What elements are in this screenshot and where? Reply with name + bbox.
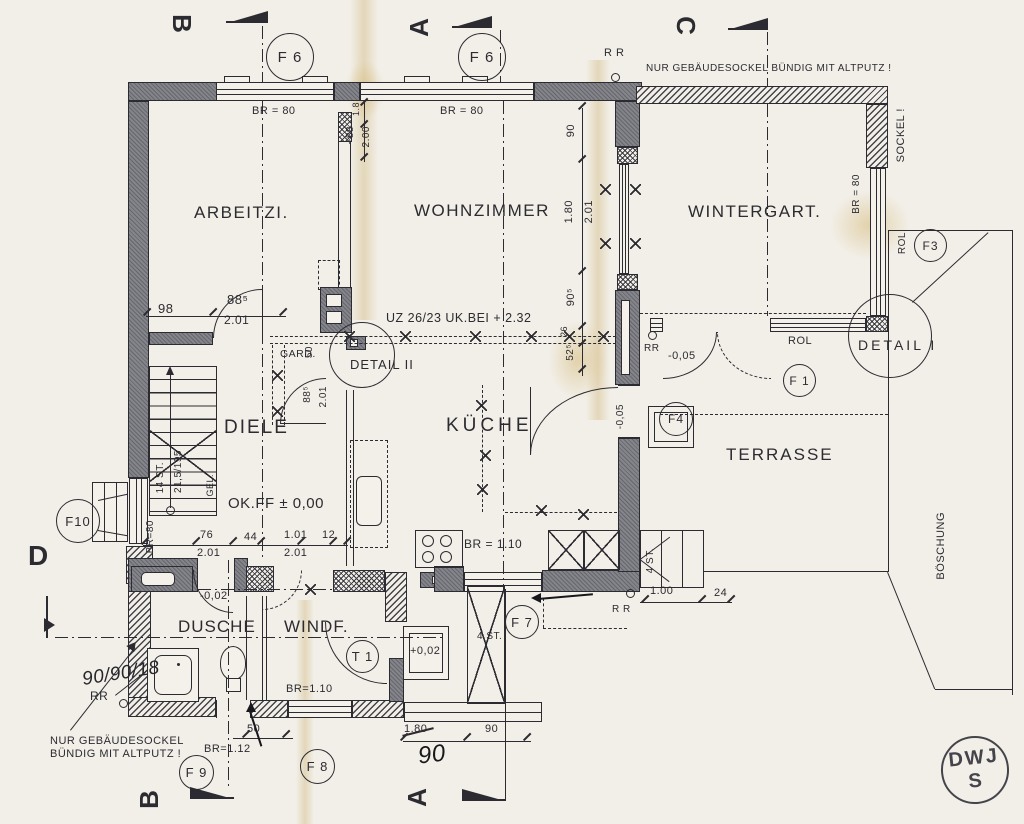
dim-br80-wintergarten: BR = 80 bbox=[852, 174, 862, 214]
marker-f4: F4 bbox=[659, 402, 693, 436]
door-arc-terrace bbox=[530, 387, 618, 455]
beam-mark bbox=[526, 331, 537, 342]
dim-tick bbox=[209, 308, 217, 316]
stoop-dashed bbox=[543, 598, 544, 628]
dim-br112: BR=1.12 bbox=[204, 744, 251, 756]
stamp-line2: S bbox=[967, 769, 985, 793]
section-flag bbox=[458, 16, 492, 26]
rr-pipe bbox=[626, 589, 635, 598]
detail1-label: DETAIL I bbox=[858, 338, 937, 353]
beam-mark bbox=[578, 509, 589, 520]
section-flag bbox=[462, 799, 506, 801]
dim-98: 98 bbox=[158, 302, 173, 316]
beam-mark bbox=[470, 331, 481, 342]
dashed-recess bbox=[318, 260, 340, 290]
note-steps-terrasse: 4 ST. bbox=[646, 548, 656, 573]
cooktop bbox=[415, 530, 463, 568]
section-flag bbox=[190, 797, 234, 799]
window bbox=[650, 318, 663, 332]
wall-niche bbox=[621, 300, 630, 375]
room-label-dusche: DUSCHE bbox=[178, 618, 256, 636]
beam-mark bbox=[600, 238, 611, 249]
beam-mark bbox=[630, 238, 641, 249]
dim-201d: 2.01 bbox=[284, 548, 307, 560]
steps-diagonal bbox=[467, 586, 505, 704]
note-rol-terrasse: ROL bbox=[788, 336, 812, 348]
section-flag bbox=[226, 21, 268, 23]
section-letter-d: D bbox=[28, 540, 48, 572]
marker-f8: F 8 bbox=[300, 749, 335, 784]
door-jamb bbox=[216, 700, 217, 718]
wall bbox=[389, 658, 404, 702]
beam-mark bbox=[480, 450, 491, 461]
step-line bbox=[682, 530, 683, 588]
dim-tick bbox=[463, 733, 471, 741]
room-label-wintergarten: WINTERGART. bbox=[688, 203, 821, 221]
dim-101: 1.01 bbox=[284, 530, 307, 542]
note-sockel-top: NUR GEBÄUDESOCKEL BÜNDIG MIT ALTPUTZ ! bbox=[646, 64, 892, 75]
marker-f9: F 9 bbox=[179, 755, 214, 790]
note-stairs-count: 14 ST. bbox=[156, 462, 166, 493]
dim-26: 26 bbox=[560, 326, 569, 337]
marker-label: F 8 bbox=[307, 759, 329, 774]
wc bbox=[220, 646, 246, 680]
marker-label: T 1 bbox=[352, 649, 374, 664]
site-line bbox=[935, 689, 1012, 690]
wall bbox=[128, 82, 218, 101]
window bbox=[360, 82, 534, 101]
wall-sockel bbox=[636, 86, 888, 104]
dim-line bbox=[640, 602, 732, 603]
steps-landing-line bbox=[404, 712, 542, 713]
terrace-dashed bbox=[660, 414, 888, 415]
detail2-label: DETAIL II bbox=[350, 358, 414, 372]
dim-tick bbox=[282, 730, 290, 738]
marker-label: F4 bbox=[668, 412, 684, 426]
partition bbox=[246, 596, 247, 700]
rr-pipe bbox=[611, 73, 620, 82]
wall bbox=[615, 101, 640, 147]
wall-pier bbox=[617, 147, 638, 164]
dim-minus002: -0,02 bbox=[200, 591, 228, 603]
dwj-stamp: DWJ S bbox=[938, 733, 1013, 808]
label-rr-bottomleft: RR bbox=[90, 690, 108, 703]
note-okff: OK.FF ± 0,00 bbox=[228, 496, 324, 512]
marker-label: F 7 bbox=[511, 615, 533, 630]
walkline-arrow bbox=[166, 366, 174, 375]
beam-mark bbox=[477, 484, 488, 495]
window bbox=[216, 82, 334, 101]
note-gelaender: GEL. bbox=[206, 474, 215, 497]
terrace-edge bbox=[703, 571, 889, 572]
partition bbox=[266, 596, 267, 700]
burner bbox=[422, 551, 434, 563]
dim-100: 1.00 bbox=[650, 586, 673, 598]
section-letter-a-bottom: A bbox=[402, 788, 433, 807]
rr-pipe bbox=[119, 699, 128, 708]
storage-box bbox=[548, 530, 584, 570]
dim-br80-diele: BR=80 bbox=[146, 520, 156, 553]
dim-50v: 50 bbox=[305, 346, 315, 358]
section-letter-b-bottom: B bbox=[134, 790, 165, 809]
stair-walkline bbox=[170, 372, 171, 508]
wall bbox=[618, 438, 640, 572]
marker-f6-mid: F 6 bbox=[458, 33, 506, 81]
window-sill bbox=[224, 76, 250, 83]
section-letter-b-top: B bbox=[166, 14, 197, 33]
terrace-edge bbox=[888, 230, 889, 572]
section-line-c bbox=[767, 32, 768, 86]
marker-label: F 6 bbox=[470, 49, 495, 66]
dim-76: 76 bbox=[200, 530, 213, 542]
label-rr-wintergarten: RR bbox=[644, 344, 659, 355]
section-flag bbox=[734, 18, 768, 28]
note-beam: UZ 26/23 UK.BEI + 2.32 bbox=[386, 312, 531, 325]
section-flag bbox=[44, 618, 55, 632]
dim-24: 24 bbox=[714, 588, 727, 600]
door-arc-windfang-dashed bbox=[262, 570, 302, 610]
stamp-line1: DWJ bbox=[947, 744, 1000, 772]
note-sockel-left-2: BÜNDIG MIT ALTPUTZ ! bbox=[50, 749, 181, 761]
pen-arrow-head bbox=[246, 702, 256, 712]
dim-88t: ~88 bbox=[346, 126, 356, 144]
wall-column bbox=[334, 82, 360, 101]
dim-885v: 88⁵ bbox=[303, 386, 313, 403]
note-boeschung: BÖSCHUNG bbox=[936, 512, 947, 580]
section-flag bbox=[728, 28, 768, 30]
dim-180: 1.80 bbox=[564, 200, 575, 223]
room-label-arbeitszimmer: ARBEITZI. bbox=[194, 204, 289, 222]
section-line-b bbox=[262, 101, 263, 560]
pen-arrow bbox=[538, 593, 593, 600]
section-line-b bbox=[262, 26, 263, 82]
handwritten-90: 90 bbox=[417, 740, 448, 768]
chimney-flue bbox=[326, 294, 342, 307]
dim-line bbox=[143, 545, 348, 546]
wall-pier bbox=[333, 570, 385, 592]
floor-plan-drawing: F 6 F 6 F3 F 1 F4 F 7 F 8 F 9 F10 T 1 AR… bbox=[0, 0, 1024, 824]
beam-mark bbox=[598, 331, 609, 342]
dim-201e: 2.01 bbox=[319, 386, 329, 407]
window-sill bbox=[404, 76, 430, 83]
dim-plus002: +0,02 bbox=[410, 646, 440, 658]
marker-label: F 6 bbox=[278, 49, 303, 66]
beam-mark bbox=[400, 331, 411, 342]
burner bbox=[440, 535, 452, 547]
burner bbox=[440, 551, 452, 563]
wall bbox=[534, 82, 642, 101]
partition bbox=[350, 142, 351, 288]
beam-mark bbox=[476, 400, 487, 411]
door-arc-wintergarten-dashed bbox=[717, 332, 771, 379]
marker-label: F10 bbox=[65, 514, 90, 529]
dim-minus005-kueche: -0,05 bbox=[616, 404, 626, 429]
section-flag bbox=[452, 26, 492, 28]
window bbox=[288, 700, 352, 718]
dim-tick bbox=[192, 537, 200, 545]
dim-44: 44 bbox=[244, 532, 257, 544]
wall-sockel bbox=[352, 700, 404, 718]
note-sockel-right: SOCKEL ! bbox=[896, 108, 907, 162]
dim-90: 90 bbox=[566, 124, 577, 137]
marker-t1: T 1 bbox=[346, 640, 379, 673]
burner bbox=[422, 535, 434, 547]
marker-f7: F 7 bbox=[505, 605, 539, 639]
note-sockel-left-1: NUR GEBÄUDESOCKEL bbox=[50, 736, 184, 748]
section-letter-c-top: C bbox=[670, 16, 701, 35]
stoop-dashed bbox=[543, 628, 627, 629]
dim-50: 50 bbox=[247, 724, 260, 736]
chimney-flue bbox=[326, 311, 342, 324]
dim-br110-windfang: BR=1.10 bbox=[286, 684, 333, 696]
dim-tick bbox=[523, 733, 531, 741]
shower-drain bbox=[177, 663, 180, 666]
dim-90p: 90 bbox=[485, 724, 498, 736]
washbasin bbox=[141, 572, 175, 586]
section-flag bbox=[462, 789, 498, 799]
note-steps-windfang: 4 ST. bbox=[477, 632, 502, 643]
window-sill bbox=[302, 76, 328, 83]
wall bbox=[128, 101, 149, 478]
beam-mark bbox=[630, 184, 641, 195]
dim-12: 12 bbox=[322, 530, 335, 542]
label-rr-top: R R bbox=[604, 48, 624, 60]
wall bbox=[149, 332, 213, 345]
partition bbox=[262, 596, 263, 700]
window-line bbox=[104, 482, 105, 542]
wall-sockel bbox=[385, 572, 407, 622]
marker-f10: F10 bbox=[56, 499, 100, 543]
section-flag bbox=[234, 11, 268, 21]
wall-pier bbox=[617, 274, 638, 290]
dim-br80-b: BR = 80 bbox=[440, 106, 484, 118]
dim-line bbox=[146, 316, 286, 317]
dim-tick bbox=[229, 537, 237, 545]
marker-label: F3 bbox=[922, 239, 938, 253]
marker-label: F 1 bbox=[789, 374, 809, 388]
terrace-corner bbox=[887, 572, 935, 689]
storage-box bbox=[584, 530, 620, 570]
dim-tick bbox=[257, 537, 265, 545]
door-jamb bbox=[618, 437, 640, 438]
dim-525: 52⁵ bbox=[566, 344, 576, 361]
room-label-kueche: KÜCHE bbox=[446, 416, 533, 436]
marker-f1: F 1 bbox=[783, 364, 816, 397]
section-line-a bbox=[503, 101, 504, 589]
wall bbox=[542, 570, 640, 592]
beam-dashed bbox=[505, 512, 617, 513]
pen-arrow-head bbox=[531, 593, 541, 603]
wall bbox=[434, 566, 464, 592]
note-stairs-dim: 21,5/195 bbox=[174, 450, 184, 493]
window bbox=[619, 164, 629, 274]
detail1-circle bbox=[848, 294, 932, 378]
dim-br80-a: BR = 80 bbox=[252, 106, 296, 118]
dim-201c: 2.01 bbox=[197, 548, 220, 560]
marker-label: F 9 bbox=[186, 765, 208, 780]
section-line-d bbox=[55, 637, 445, 638]
room-label-diele: DIELE bbox=[224, 418, 289, 438]
wall-sockel bbox=[866, 104, 888, 168]
beam-mark bbox=[272, 370, 283, 381]
beam-mark bbox=[600, 184, 611, 195]
site-line bbox=[1012, 230, 1013, 695]
room-label-windfang: WINDF. bbox=[284, 618, 349, 636]
dim-201a: 2.01 bbox=[224, 314, 249, 327]
room-label-terrasse: TERRASSE bbox=[726, 446, 834, 464]
sink bbox=[356, 476, 382, 526]
dim-line bbox=[582, 108, 583, 376]
step-line bbox=[661, 530, 662, 588]
beam-mark bbox=[536, 505, 547, 516]
walkline-start bbox=[166, 506, 175, 515]
dim-br110-kueche: BR = 1.10 bbox=[464, 538, 522, 551]
dim-200: 2.00 bbox=[362, 126, 372, 147]
note-rol-f3: ROL bbox=[898, 232, 908, 254]
room-label-wohnzimmer: WOHNZIMMER bbox=[414, 202, 550, 220]
dim-905: 90⁵ bbox=[566, 288, 577, 306]
dim-minus005-terrasse: -0,05 bbox=[668, 351, 696, 363]
dim-201b: 2.01 bbox=[584, 200, 595, 223]
dim-885: 88⁵ bbox=[227, 293, 248, 307]
rr-pipe bbox=[648, 331, 657, 340]
marker-f6-left: F 6 bbox=[266, 33, 314, 81]
section-letter-a-top: A bbox=[404, 18, 435, 37]
dim-18: 1.8 bbox=[352, 102, 361, 116]
detail2-circle bbox=[329, 322, 395, 388]
marker-f3: F3 bbox=[914, 229, 947, 262]
door-jamb bbox=[618, 385, 640, 386]
dim-line bbox=[233, 738, 293, 739]
roof-line-dashed bbox=[640, 313, 866, 314]
dim-tick bbox=[279, 308, 287, 316]
label-rr-bottommid: R R bbox=[612, 605, 631, 616]
beam-mark bbox=[305, 584, 316, 595]
